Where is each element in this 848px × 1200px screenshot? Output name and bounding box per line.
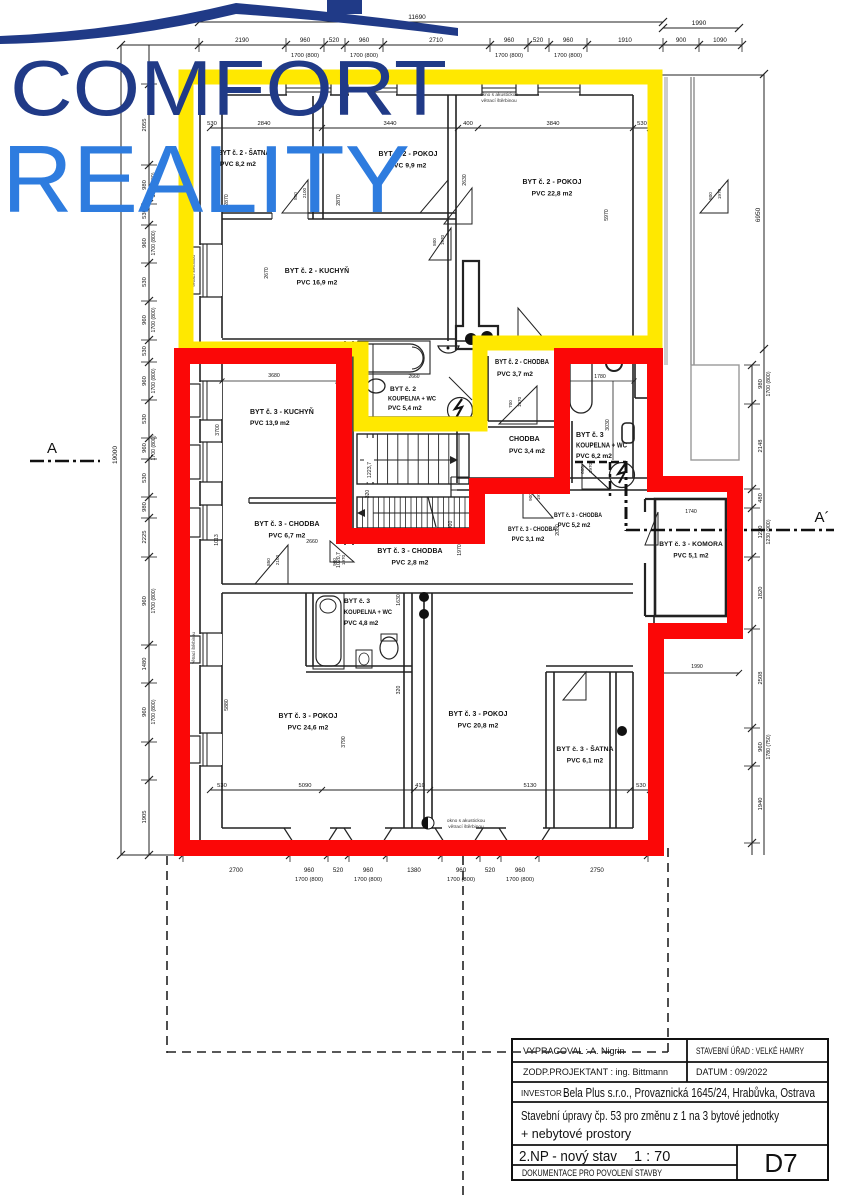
svg-text:1990: 1990 [691,664,703,670]
svg-text:BYT č. 3 - KUCHYŇ: BYT č. 3 - KUCHYŇ [250,407,314,416]
svg-text:1013: 1013 [214,534,220,546]
svg-text:BYT č. 3: BYT č. 3 [576,432,604,439]
svg-text:PVC 3,7 m2: PVC 3,7 m2 [497,371,533,378]
svg-text:PVC 16,9 m2: PVC 16,9 m2 [297,280,338,287]
svg-text:Bela Plus s.r.o., Provaznická: Bela Plus s.r.o., Provaznická 1645/24, H… [563,1086,815,1100]
svg-text:BYT č. 2: BYT č. 2 [390,386,416,393]
svg-text:1910: 1910 [618,37,632,44]
svg-text:1970: 1970 [717,188,722,199]
svg-text:850: 850 [266,558,271,566]
svg-text:11690: 11690 [408,14,426,21]
svg-text:BYT č. 2 - KUCHYŇ: BYT č. 2 - KUCHYŇ [285,266,350,275]
svg-text:800: 800 [432,238,437,246]
svg-text:2700: 2700 [229,867,243,874]
svg-text:1780: 1780 [594,374,606,380]
svg-text:2750: 2750 [590,867,604,874]
svg-text:větrací štěrbinou: větrací štěrbinou [448,824,484,830]
svg-text:BYT č. 3 - CHODBA: BYT č. 3 - CHODBA [508,526,556,533]
svg-text:3840: 3840 [547,121,560,127]
svg-text:PVC 6,2 m2: PVC 6,2 m2 [576,453,612,460]
svg-text:1220: 1220 [758,526,764,539]
svg-text:BYT č. 3 - KOMORA: BYT č. 3 - KOMORA [659,541,723,548]
svg-text:PVC 2,8 m2: PVC 2,8 m2 [392,560,429,567]
svg-text:2660: 2660 [306,539,318,545]
svg-text:1970: 1970 [440,234,445,245]
svg-text:410: 410 [415,783,425,789]
svg-text:1020,7: 1020,7 [336,552,342,568]
svg-text:520: 520 [333,867,344,874]
svg-text:1780 (750): 1780 (750) [766,734,772,759]
svg-text:PVC 3,1 m2: PVC 3,1 m2 [512,537,545,543]
svg-text:1700 (800): 1700 (800) [151,699,157,724]
svg-text:+ nebytové prostory: + nebytové prostory [521,1127,632,1141]
svg-text:960: 960 [142,238,148,248]
svg-text:400: 400 [463,121,473,127]
svg-text:1700 (800): 1700 (800) [151,230,157,255]
svg-text:PVC 5,4 m2: PVC 5,4 m2 [388,405,422,412]
svg-text:BYT č. 3 - POKOJ: BYT č. 3 - POKOJ [448,711,507,718]
svg-text:KOUPELNA + WC: KOUPELNA + WC [344,609,392,616]
svg-text:1700 (800): 1700 (800) [151,307,157,332]
svg-text:STAVEBNÍ ÚŘAD : VELKÉ HAMRY: STAVEBNÍ ÚŘAD : VELKÉ HAMRY [696,1046,804,1056]
svg-text:960: 960 [142,315,148,325]
svg-text:520: 520 [329,37,340,44]
svg-text:1970: 1970 [517,396,522,407]
svg-text:COMFORT: COMFORT [10,44,447,132]
svg-text:960: 960 [304,867,315,874]
svg-text:900: 900 [676,37,687,44]
svg-text:2660: 2660 [408,374,419,380]
svg-text:980: 980 [758,379,764,389]
svg-text:BYT č. 3: BYT č. 3 [344,598,370,605]
svg-text:480: 480 [758,493,764,503]
svg-text:PVC 3,4 m2: PVC 3,4 m2 [509,448,545,455]
svg-text:3680: 3680 [268,373,280,379]
svg-text:2670: 2670 [264,267,270,279]
svg-text:960: 960 [758,742,764,752]
svg-text:1970: 1970 [457,544,463,556]
svg-text:1700 (800): 1700 (800) [151,435,157,460]
svg-text:960: 960 [142,443,148,453]
svg-text:PVC 6,7 m2: PVC 6,7 m2 [269,533,306,540]
svg-text:2508: 2508 [758,672,764,685]
svg-text:ZODP.PROJEKTANT : ing. Bittman: ZODP.PROJEKTANT : ing. Bittmann [523,1067,668,1077]
svg-text:větrací štěrbinou: větrací štěrbinou [191,632,196,664]
svg-text:A´: A´ [815,509,830,526]
svg-text:1905: 1905 [142,811,148,824]
svg-text:5970: 5970 [604,209,610,221]
svg-text:1700 (800): 1700 (800) [506,877,534,883]
svg-text:A: A [47,440,57,457]
svg-text:1740: 1740 [685,509,697,515]
svg-text:1700 (800): 1700 (800) [295,877,323,883]
svg-text:1700 (800): 1700 (800) [495,53,523,59]
svg-text:2190: 2190 [235,37,249,44]
svg-text:700: 700 [508,400,513,408]
svg-text:520: 520 [533,37,544,44]
svg-text:BYT č. 3 - ŠATNA: BYT č. 3 - ŠATNA [556,744,613,753]
svg-text:VYPRACOVAL : A. Nigrin: VYPRACOVAL : A. Nigrin [523,1046,625,1056]
svg-text:PVC 13,9 m2: PVC 13,9 m2 [250,420,290,427]
svg-text:960: 960 [142,707,148,717]
svg-text:1700 (800): 1700 (800) [447,877,475,883]
svg-text:960: 960 [563,37,574,44]
svg-text:5880: 5880 [224,699,230,711]
svg-text:1380: 1380 [407,867,421,874]
svg-text:1700 (800): 1700 (800) [554,53,582,59]
svg-text:PVC 24,6 m2: PVC 24,6 m2 [288,725,329,732]
svg-text:960: 960 [300,37,311,44]
svg-text:D7: D7 [764,1148,797,1178]
svg-text:2.NP - nový stav: 2.NP - nový stav [519,1149,618,1165]
svg-text:6950: 6950 [755,207,762,222]
svg-text:větrací štěrbinou: větrací štěrbinou [481,98,517,104]
svg-text:5130: 5130 [524,783,537,789]
svg-text:INVESTOR :: INVESTOR : [521,1089,566,1098]
svg-text:PVC 5,2 m2: PVC 5,2 m2 [558,523,591,529]
svg-text:320: 320 [396,686,402,695]
svg-text:okno s akustickou: okno s akustickou [447,818,485,824]
svg-text:600: 600 [580,466,585,474]
svg-text:PVC 5,1 m2: PVC 5,1 m2 [673,553,709,560]
svg-text:960: 960 [359,37,370,44]
svg-text:okno s akustickou: okno s akustickou [480,92,518,98]
svg-text:BYT č. 3 - CHODBA: BYT č. 3 - CHODBA [254,521,319,528]
svg-text:1090: 1090 [713,37,727,44]
svg-text:2710: 2710 [429,37,443,44]
svg-text:2148: 2148 [758,440,764,453]
svg-text:2225: 2225 [142,531,148,544]
svg-text:1480: 1480 [142,658,148,671]
svg-text:960: 960 [456,867,467,874]
svg-text:980: 980 [142,502,148,512]
svg-text:530: 530 [142,414,148,424]
svg-text:530: 530 [217,783,227,789]
svg-text:BYT č. 3 - CHODBA: BYT č. 3 - CHODBA [554,512,602,519]
svg-text:800: 800 [708,192,713,200]
svg-text:PVC 22,8 m2: PVC 22,8 m2 [532,191,573,198]
svg-text:1223,7: 1223,7 [367,462,373,478]
svg-text:BYT č. 3 - POKOJ: BYT č. 3 - POKOJ [278,713,337,720]
svg-text:320: 320 [365,490,371,499]
svg-text:5090: 5090 [299,783,312,789]
svg-text:2630: 2630 [462,174,468,186]
svg-text:960: 960 [515,867,526,874]
svg-text:1700 (800): 1700 (800) [354,877,382,883]
svg-text:530: 530 [142,277,148,287]
svg-text:960: 960 [142,596,148,606]
svg-text:REALITY: REALITY [2,126,410,233]
svg-text:BYT č. 2 - POKOJ: BYT č. 2 - POKOJ [522,179,581,186]
svg-text:DOKUMENTACE PRO POVOLENÍ STAVB: DOKUMENTACE PRO POVOLENÍ STAVBY [522,1168,662,1178]
svg-text:530: 530 [142,346,148,356]
svg-text:PVC 6,1 m2: PVC 6,1 m2 [567,758,604,765]
svg-text:1940: 1940 [758,798,764,811]
svg-text:960: 960 [142,376,148,386]
svg-text:3030: 3030 [605,419,611,431]
svg-text:1230 (900): 1230 (900) [766,519,772,544]
svg-text:1700 (800): 1700 (800) [151,588,157,613]
svg-text:1700 (800): 1700 (800) [766,371,772,396]
svg-text:3790: 3790 [341,736,347,748]
svg-text:BYT č. 2 - CHODBA: BYT č. 2 - CHODBA [495,359,549,366]
svg-text:Stavební úpravy čp. 53 pro změ: Stavební úpravy čp. 53 pro změnu z 1 na … [521,1109,780,1123]
svg-text:19000: 19000 [112,446,119,464]
svg-text:530: 530 [142,473,148,483]
svg-text:DATUM : 09/2022: DATUM : 09/2022 [696,1067,767,1077]
svg-text:BYT č. 3 - CHODBA: BYT č. 3 - CHODBA [377,548,442,555]
svg-text:KOUPELNA + WC: KOUPELNA + WC [576,443,627,450]
svg-text:CHODBA: CHODBA [509,436,540,443]
svg-text:1990: 1990 [692,20,707,27]
svg-text:2100: 2100 [275,554,280,565]
svg-text:1630: 1630 [396,594,402,606]
svg-text:3700: 3700 [215,424,221,436]
svg-text:520: 520 [485,867,496,874]
svg-text:PVC 20,8 m2: PVC 20,8 m2 [458,723,499,730]
svg-text:960: 960 [363,867,374,874]
svg-text:PVC 4,8 m2: PVC 4,8 m2 [344,620,379,627]
svg-text:1700 (800): 1700 (800) [151,368,157,393]
svg-text:530: 530 [636,783,646,789]
svg-text:530: 530 [637,121,647,127]
svg-text:1820: 1820 [758,587,764,600]
svg-text:1 : 70: 1 : 70 [634,1149,670,1165]
svg-text:960: 960 [504,37,515,44]
svg-text:KOUPELNA + WC: KOUPELNA + WC [388,396,436,403]
